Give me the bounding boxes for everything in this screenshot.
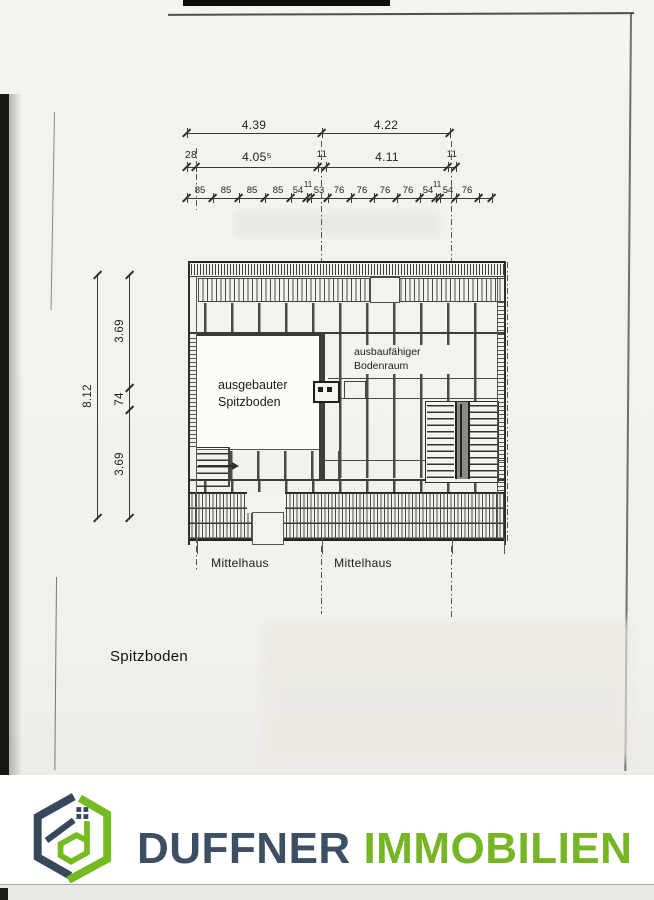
- dim-label-row3-14: 76: [462, 185, 473, 196]
- collar-beam-line-1: [328, 378, 506, 379]
- right-staircase-flight-right: [470, 403, 497, 478]
- dim-label-total-height: 8.12: [82, 384, 94, 408]
- scan-left-black-edge: [0, 94, 9, 775]
- logo-band: DUFFNER IMMOBILIEN: [0, 775, 654, 884]
- axis-tick-1: [197, 538, 198, 554]
- hatch-opening-box: [344, 381, 366, 399]
- dim-label-row3-5: 11: [304, 180, 312, 189]
- bottom-dormer-box: [252, 512, 284, 545]
- dim-label-row3-1: 85: [221, 185, 232, 196]
- dim-label-row1-1: 4.22: [374, 118, 399, 132]
- scanned-page: 4.39 4.22 28 4.05⁵ 11 4.11 11 85: [0, 0, 654, 900]
- dim-label-row3-2: 85: [247, 185, 258, 196]
- logo-word-immobilien: IMMOBILIEN: [363, 824, 632, 873]
- right-staircase-center-line: [460, 404, 462, 477]
- chimney-flue-2: [327, 387, 332, 392]
- plan-right-edge: [504, 261, 506, 545]
- axis-line-right-upper: [451, 141, 452, 261]
- top-wall-dormer-notch: [370, 277, 400, 303]
- axis-line-right-lower: [451, 546, 452, 617]
- dim-label-row2-3: 4.11: [375, 150, 399, 164]
- dim-label-row3-10: 76: [403, 185, 414, 196]
- top-wall-outer-line: [188, 261, 506, 263]
- chimney: [313, 381, 340, 403]
- dim-label-row3-7: 76: [334, 185, 345, 196]
- top-wall-hatch-inner: [198, 278, 506, 302]
- axis-line-left-upper: [196, 148, 197, 210]
- dim-label-row3-6: 53: [314, 185, 325, 196]
- dim-left-segments-line: [129, 275, 130, 518]
- dim-row3-line: [187, 198, 493, 199]
- axis-line-mid-upper: [321, 141, 322, 261]
- bottom-dormer-gap: [247, 492, 285, 513]
- dim-label-segment-0: 3.69: [114, 319, 126, 343]
- left-stair-arrow-head: [232, 462, 239, 470]
- axis-tick-2: [322, 538, 323, 554]
- axis-line-right-wall: [507, 262, 508, 544]
- axis-tick-4: [504, 538, 505, 554]
- dim-label-row2-1: 4.05⁵: [242, 150, 272, 164]
- right-wall-hatch: [498, 301, 504, 491]
- room-right-label: ausbaufähiger Bodenraum: [352, 345, 452, 374]
- top-wall-mid-line: [188, 276, 506, 277]
- top-stud-row: [204, 303, 492, 332]
- dim-left-total-line: [97, 275, 98, 518]
- chimney-flue-1: [318, 387, 323, 392]
- caption-spitzboden: Spitzboden: [110, 648, 188, 665]
- axis-line-mid-lower: [321, 546, 322, 614]
- right-staircase-stringer: [455, 402, 470, 479]
- logo-house-icon: [28, 791, 116, 883]
- bottom-wall: [188, 492, 506, 541]
- label-mittelhaus-right: Mittelhaus: [334, 556, 392, 570]
- top-wall-hatch-outer: [188, 264, 506, 275]
- scan-top-black-bar: [183, 0, 390, 6]
- dim-label-row3-11: 54: [423, 185, 434, 196]
- dim-label-row1-0: 4.39: [242, 118, 267, 132]
- scan-bottom-strip: [0, 884, 654, 900]
- left-stair-arrow-line: [198, 465, 234, 467]
- dim-label-row3-8: 76: [357, 185, 368, 196]
- left-stair-treads: [196, 447, 230, 487]
- right-staircase: [425, 401, 499, 483]
- dim-label-row3-4: 54: [293, 185, 304, 196]
- logo-word-duffner: DUFFNER: [137, 824, 351, 873]
- dim-label-segment-2: 3.69: [114, 452, 126, 476]
- floor-plan: ausgebauter Spitzboden ausbaufähiger Bod…: [188, 261, 506, 545]
- plan-left-inner-line: [196, 276, 197, 543]
- right-staircase-flight-left: [427, 403, 454, 478]
- scan-left-gray-edge: [9, 94, 22, 775]
- scan-bottom-black-mark: [0, 888, 8, 900]
- dim-label-row3-9: 76: [380, 185, 391, 196]
- lower-left-studs: [230, 451, 342, 479]
- logo-wordmark: DUFFNER IMMOBILIEN: [137, 824, 632, 874]
- plan-left-edge: [188, 261, 190, 545]
- room-left-label: ausgebauter Spitzboden: [218, 377, 288, 411]
- dim-label-segment-1: 74: [114, 392, 126, 405]
- dim-label-row3-3: 85: [273, 185, 284, 196]
- label-mittelhaus-left: Mittelhaus: [211, 556, 269, 570]
- axis-tick-3: [452, 538, 453, 554]
- dim-label-row3-12: 11: [433, 180, 441, 189]
